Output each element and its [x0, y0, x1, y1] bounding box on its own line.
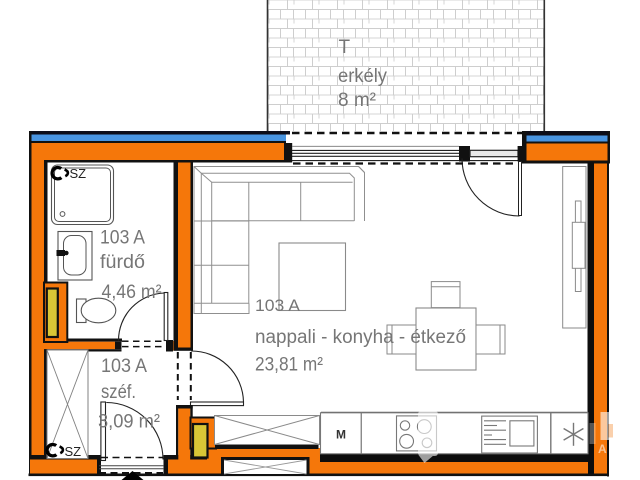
- svg-text:A: A: [598, 442, 607, 456]
- svg-text:erkély: erkély: [338, 66, 387, 87]
- svg-text:8 m²: 8 m²: [338, 90, 376, 111]
- svg-text:nappali - konyha - étkező: nappali - konyha - étkező: [255, 327, 466, 348]
- svg-text:103 A: 103 A: [101, 356, 147, 377]
- svg-text:fürdő: fürdő: [100, 252, 145, 273]
- svg-text:SZ: SZ: [70, 166, 87, 181]
- svg-text:4,46 m²: 4,46 m²: [102, 282, 162, 303]
- svg-text:103 A: 103 A: [100, 228, 145, 249]
- svg-text:M: M: [336, 428, 346, 442]
- svg-text:3,09 m²: 3,09 m²: [98, 412, 160, 433]
- svg-text:103 A: 103 A: [255, 296, 301, 315]
- svg-text:SZ: SZ: [65, 444, 82, 459]
- svg-text:széf.: széf.: [101, 382, 136, 403]
- svg-text:23,81 m²: 23,81 m²: [255, 355, 323, 376]
- svg-text:T: T: [339, 37, 351, 58]
